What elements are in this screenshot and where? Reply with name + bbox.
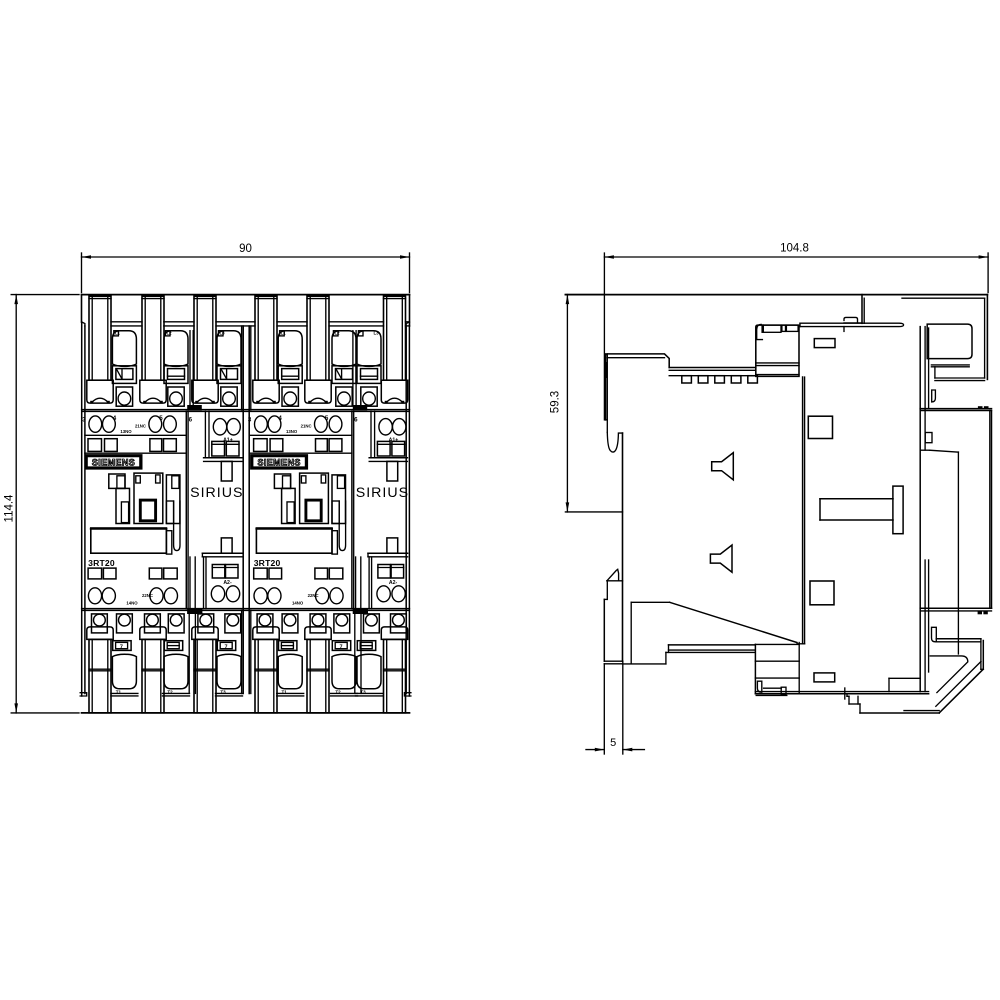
svg-text:L2: L2 <box>334 330 340 335</box>
svg-text:7: 7 <box>224 644 227 650</box>
svg-text:3: 3 <box>248 416 252 423</box>
svg-text:T2: T2 <box>167 690 173 695</box>
svg-text:6: 6 <box>189 416 193 423</box>
svg-text:14NO: 14NO <box>292 601 304 606</box>
svg-text:SIEMENS: SIEMENS <box>257 457 300 467</box>
svg-text:4: 4 <box>278 415 282 422</box>
svg-text:A2-: A2- <box>389 580 398 586</box>
svg-text:T1: T1 <box>282 690 288 695</box>
svg-text:13NO: 13NO <box>120 429 132 434</box>
svg-text:22NC: 22NC <box>308 593 319 598</box>
svg-text:SIRIUS: SIRIUS <box>356 485 409 501</box>
svg-text:14NO: 14NO <box>126 601 138 606</box>
svg-text:SIEMENS: SIEMENS <box>92 457 135 467</box>
svg-text:L3: L3 <box>219 330 225 335</box>
svg-text:7: 7 <box>120 644 123 650</box>
svg-text:59.3: 59.3 <box>550 391 562 413</box>
svg-text:3RT20: 3RT20 <box>254 558 281 568</box>
svg-text:5: 5 <box>610 737 616 749</box>
svg-text:A2-: A2- <box>223 580 232 586</box>
svg-text:22NC: 22NC <box>142 593 153 598</box>
svg-text:L3: L3 <box>373 330 379 335</box>
svg-text:SIRIUS: SIRIUS <box>190 485 243 501</box>
svg-text:T3: T3 <box>360 690 366 695</box>
svg-text:5: 5 <box>325 415 329 422</box>
svg-text:A1+: A1+ <box>389 437 399 443</box>
svg-text:L1: L1 <box>115 330 121 335</box>
svg-text:90: 90 <box>239 243 252 255</box>
svg-text:T2: T2 <box>335 690 341 695</box>
svg-text:L1: L1 <box>281 330 287 335</box>
svg-text:3RT20: 3RT20 <box>88 558 115 568</box>
svg-text:T1: T1 <box>116 690 122 695</box>
svg-text:7: 7 <box>339 644 342 650</box>
svg-text:21NC: 21NC <box>301 423 312 428</box>
svg-text:6: 6 <box>354 416 358 423</box>
svg-text:T3: T3 <box>220 690 226 695</box>
svg-text:13NO: 13NO <box>286 429 298 434</box>
svg-text:21NC: 21NC <box>135 423 146 428</box>
svg-text:114.4: 114.4 <box>4 494 16 523</box>
svg-text:4: 4 <box>113 415 117 422</box>
svg-text:5: 5 <box>159 415 163 422</box>
svg-text:3: 3 <box>82 416 86 423</box>
svg-text:L2: L2 <box>166 330 172 335</box>
svg-text:104.8: 104.8 <box>780 243 809 255</box>
svg-text:A1+: A1+ <box>223 437 233 443</box>
